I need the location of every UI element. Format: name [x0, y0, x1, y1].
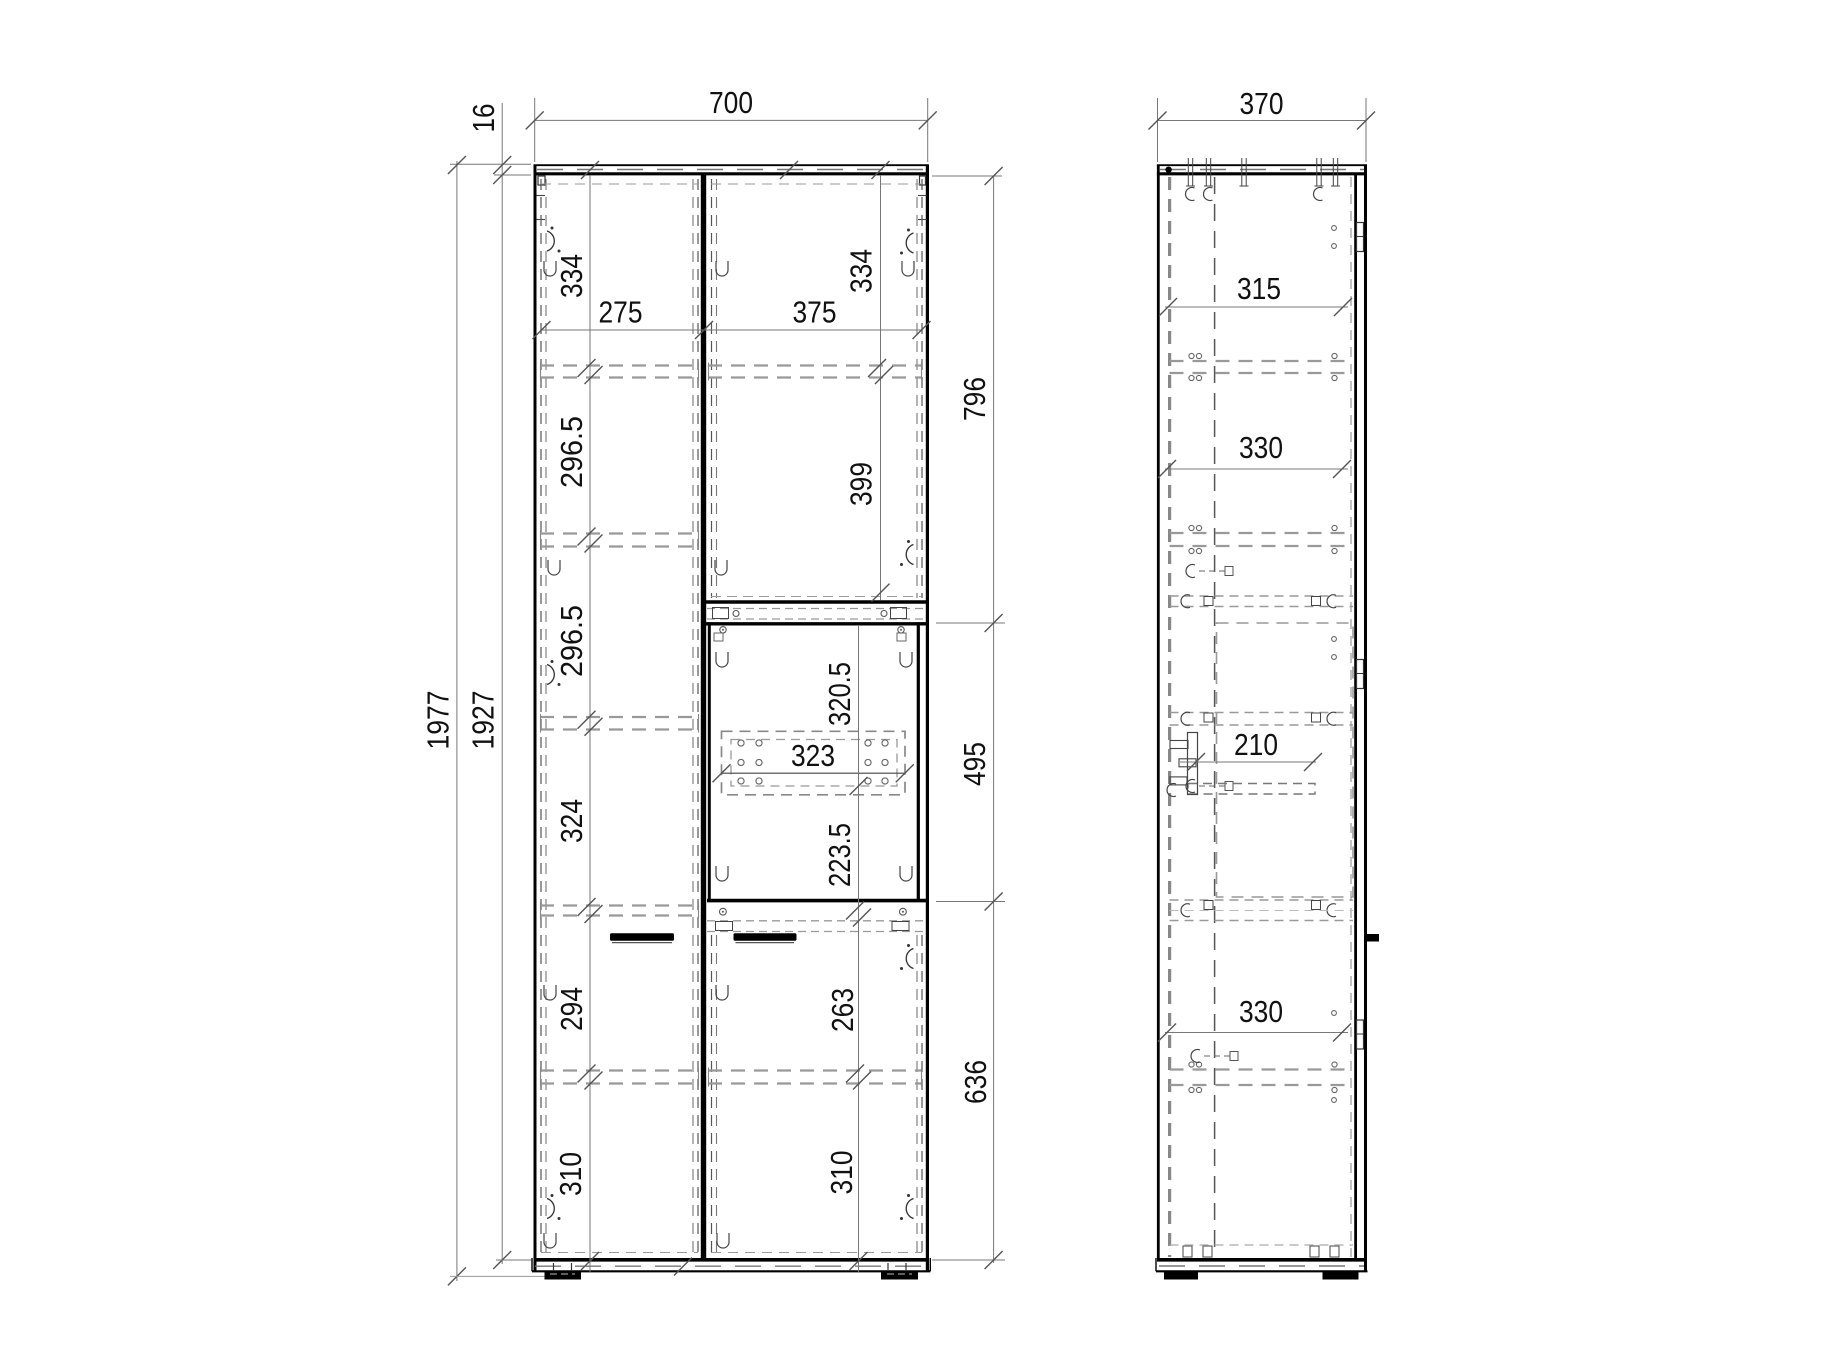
svg-text:315: 315 — [1237, 271, 1281, 306]
svg-text:263: 263 — [825, 988, 860, 1032]
svg-text:370: 370 — [1240, 86, 1284, 121]
svg-text:399: 399 — [844, 462, 879, 506]
svg-text:16: 16 — [466, 104, 501, 133]
svg-text:296.5: 296.5 — [554, 416, 589, 488]
svg-text:334: 334 — [554, 254, 589, 298]
svg-text:323: 323 — [791, 738, 835, 773]
svg-text:1977: 1977 — [421, 691, 456, 750]
svg-text:495: 495 — [957, 742, 992, 786]
svg-text:210: 210 — [1234, 727, 1278, 762]
svg-text:275: 275 — [599, 295, 643, 330]
svg-text:324: 324 — [554, 799, 589, 843]
svg-text:310: 310 — [553, 1152, 588, 1196]
svg-text:700: 700 — [709, 85, 753, 120]
svg-text:320.5: 320.5 — [822, 662, 857, 726]
svg-text:330: 330 — [1239, 430, 1283, 465]
svg-text:296.5: 296.5 — [554, 605, 589, 677]
svg-text:223.5: 223.5 — [822, 823, 857, 887]
svg-text:334: 334 — [844, 249, 879, 293]
svg-text:1927: 1927 — [466, 691, 501, 750]
svg-text:310: 310 — [824, 1151, 859, 1195]
svg-text:796: 796 — [957, 377, 992, 421]
svg-text:636: 636 — [958, 1060, 993, 1104]
svg-text:375: 375 — [793, 295, 837, 330]
svg-text:294: 294 — [554, 987, 589, 1031]
svg-text:330: 330 — [1239, 994, 1283, 1029]
